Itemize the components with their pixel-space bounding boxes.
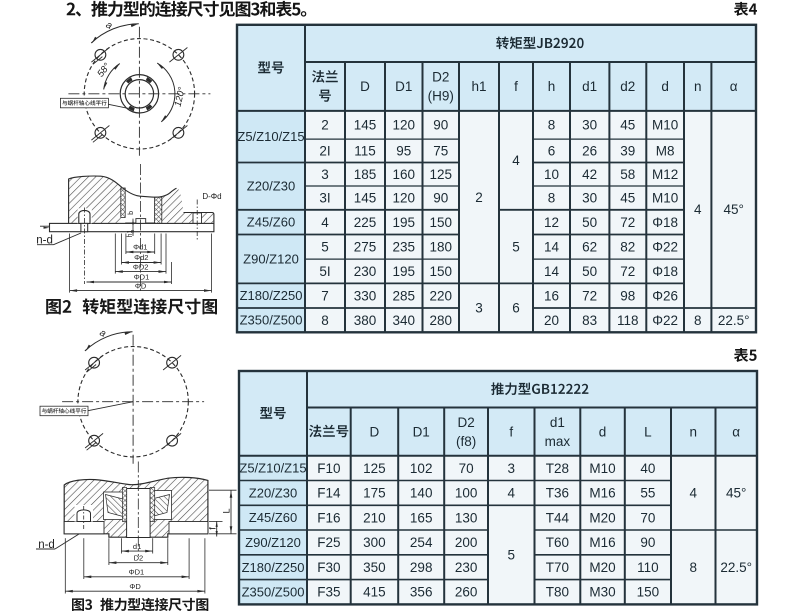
svg-text:2: 2 — [475, 190, 483, 205]
svg-text:Z5/Z10/Z15: Z5/Z10/Z15 — [237, 129, 304, 144]
svg-text:d: d — [599, 424, 607, 439]
svg-text:40: 40 — [640, 461, 655, 476]
svg-text:20: 20 — [544, 313, 559, 328]
svg-text:f: f — [208, 527, 218, 530]
svg-text:26: 26 — [582, 144, 597, 159]
svg-text:6: 6 — [512, 301, 520, 316]
svg-text:h: h — [548, 79, 556, 94]
svg-text:α: α — [730, 79, 738, 94]
svg-text:8: 8 — [321, 313, 329, 328]
svg-text:M8: M8 — [656, 144, 675, 159]
svg-text:175: 175 — [363, 486, 386, 501]
svg-text:6: 6 — [548, 144, 556, 159]
svg-text:150: 150 — [637, 585, 660, 600]
svg-text:max: max — [545, 434, 571, 449]
svg-text:a: a — [98, 327, 108, 340]
svg-text:260: 260 — [455, 585, 478, 600]
svg-text:340: 340 — [393, 313, 416, 328]
svg-text:415: 415 — [363, 585, 386, 600]
svg-text:300: 300 — [363, 535, 386, 550]
svg-text:8: 8 — [689, 560, 697, 575]
svg-text:90: 90 — [433, 118, 448, 133]
svg-text:125: 125 — [430, 167, 453, 182]
svg-text:ΦD: ΦD — [135, 281, 147, 290]
svg-text:F16: F16 — [317, 510, 340, 525]
svg-text:230: 230 — [455, 560, 478, 575]
svg-text:356: 356 — [410, 585, 433, 600]
svg-text:4: 4 — [507, 486, 515, 501]
svg-text:M16: M16 — [589, 486, 615, 501]
svg-text:M20: M20 — [589, 510, 615, 525]
svg-text:d1: d1 — [582, 79, 597, 94]
svg-text:L: L — [222, 508, 232, 513]
svg-text:Z20/Z30: Z20/Z30 — [249, 485, 297, 500]
svg-text:D1: D1 — [395, 79, 412, 94]
svg-text:70: 70 — [640, 510, 655, 525]
svg-text:235: 235 — [393, 240, 416, 255]
svg-text:72: 72 — [620, 264, 635, 279]
svg-text:10: 10 — [544, 167, 559, 182]
svg-text:14: 14 — [544, 240, 560, 255]
svg-text:125: 125 — [363, 461, 386, 476]
svg-text:Φd2: Φd2 — [134, 253, 148, 262]
svg-text:8: 8 — [548, 191, 556, 206]
svg-text:4: 4 — [512, 153, 520, 168]
svg-text:350: 350 — [363, 560, 386, 575]
svg-text:n: n — [694, 79, 702, 94]
svg-text:83: 83 — [582, 313, 597, 328]
svg-text:285: 285 — [393, 288, 416, 303]
svg-text:254: 254 — [410, 535, 433, 550]
svg-text:180: 180 — [430, 240, 453, 255]
svg-text:Φ26: Φ26 — [652, 288, 678, 303]
svg-text:F35: F35 — [317, 585, 340, 600]
svg-text:39: 39 — [620, 144, 635, 159]
svg-text:f: f — [514, 79, 518, 94]
svg-text:d: d — [661, 79, 669, 94]
svg-text:380: 380 — [354, 313, 377, 328]
svg-text:14: 14 — [544, 264, 560, 279]
svg-text:75: 75 — [433, 144, 448, 159]
svg-text:d2: d2 — [620, 79, 635, 94]
svg-text:(H9): (H9) — [428, 89, 454, 104]
svg-text:F14: F14 — [317, 486, 341, 501]
svg-text:4: 4 — [321, 215, 329, 230]
svg-text:16: 16 — [544, 288, 559, 303]
svg-text:7: 7 — [321, 288, 329, 303]
svg-text:130: 130 — [455, 510, 478, 525]
svg-text:D1: D1 — [413, 424, 430, 439]
svg-text:Z350/Z500: Z350/Z500 — [240, 313, 303, 328]
svg-text:165: 165 — [410, 510, 433, 525]
svg-text:45: 45 — [620, 191, 635, 206]
svg-text:D2: D2 — [134, 553, 144, 562]
svg-text:3: 3 — [475, 301, 483, 316]
svg-text:4: 4 — [694, 202, 702, 217]
svg-text:Φ22: Φ22 — [652, 240, 678, 255]
svg-text:95: 95 — [396, 144, 411, 159]
svg-text:Z20/Z30: Z20/Z30 — [247, 179, 295, 194]
svg-text:90: 90 — [433, 191, 448, 206]
svg-text:Z90/Z120: Z90/Z120 — [243, 252, 299, 267]
svg-text:145: 145 — [354, 118, 377, 133]
svg-text:70: 70 — [459, 461, 474, 476]
svg-text:T60: T60 — [546, 535, 569, 550]
svg-text:120: 120 — [393, 191, 416, 206]
svg-text:D: D — [360, 79, 370, 94]
svg-text:D-Φd: D-Φd — [202, 192, 221, 201]
svg-text:Φ22: Φ22 — [652, 313, 678, 328]
svg-text:225: 225 — [354, 215, 377, 230]
svg-text:298: 298 — [410, 560, 433, 575]
svg-text:30: 30 — [582, 191, 597, 206]
svg-text:58: 58 — [620, 167, 635, 182]
svg-text:M20: M20 — [589, 560, 615, 575]
svg-text:90: 90 — [640, 535, 655, 550]
svg-text:T44: T44 — [546, 510, 570, 525]
svg-text:D2: D2 — [457, 415, 474, 430]
svg-text:Z90/Z120: Z90/Z120 — [245, 535, 301, 550]
svg-text:2: 2 — [321, 118, 329, 133]
svg-text:F30: F30 — [317, 560, 340, 575]
svg-text:72: 72 — [620, 215, 635, 230]
svg-text:58°: 58° — [95, 61, 113, 79]
svg-text:82: 82 — [620, 240, 635, 255]
svg-text:Z350/Z500: Z350/Z500 — [242, 585, 305, 600]
svg-text:160: 160 — [393, 167, 416, 182]
svg-text:145: 145 — [354, 191, 377, 206]
svg-text:330: 330 — [354, 288, 377, 303]
svg-text:102: 102 — [410, 461, 433, 476]
svg-text:5: 5 — [512, 239, 520, 254]
svg-text:d1: d1 — [550, 415, 565, 430]
svg-text:120: 120 — [393, 118, 416, 133]
svg-text:F25: F25 — [317, 535, 340, 550]
svg-text:T70: T70 — [546, 560, 569, 575]
svg-text:110: 110 — [637, 560, 659, 575]
svg-text:h1: h1 — [471, 79, 486, 94]
svg-text:22.5°: 22.5° — [718, 313, 750, 328]
svg-text:Φd1: Φd1 — [133, 243, 147, 252]
svg-text:(f8): (f8) — [456, 434, 476, 449]
svg-text:280: 280 — [430, 313, 453, 328]
svg-text:Z45/Z60: Z45/Z60 — [249, 510, 297, 525]
svg-text:Z180/Z250: Z180/Z250 — [240, 288, 303, 303]
svg-text:T80: T80 — [546, 585, 569, 600]
svg-text:M12: M12 — [652, 167, 678, 182]
svg-text:195: 195 — [393, 215, 416, 230]
svg-text:22.5°: 22.5° — [720, 560, 752, 575]
svg-text:12: 12 — [544, 215, 559, 230]
svg-text:M10: M10 — [652, 191, 678, 206]
svg-text:ΦD: ΦD — [129, 582, 141, 591]
svg-text:45: 45 — [620, 118, 635, 133]
svg-text:150: 150 — [430, 264, 453, 279]
svg-text:b: b — [128, 211, 135, 215]
svg-text:2I: 2I — [319, 144, 330, 159]
svg-text:3: 3 — [507, 461, 515, 476]
svg-text:4: 4 — [689, 486, 697, 501]
svg-text:42: 42 — [582, 167, 597, 182]
svg-text:ΦD1: ΦD1 — [129, 568, 145, 577]
svg-text:d1: d1 — [133, 542, 141, 551]
svg-text:Φ18: Φ18 — [652, 264, 678, 279]
svg-text:62: 62 — [582, 240, 597, 255]
svg-text:30: 30 — [582, 118, 597, 133]
svg-text:α: α — [732, 424, 740, 439]
svg-text:220: 220 — [430, 288, 453, 303]
svg-text:3: 3 — [321, 167, 329, 182]
svg-text:T28: T28 — [546, 461, 569, 476]
svg-text:D2: D2 — [432, 70, 449, 85]
svg-text:45°: 45° — [726, 486, 746, 501]
svg-text:h1: h1 — [127, 230, 134, 238]
svg-text:118: 118 — [617, 313, 639, 328]
svg-text:195: 195 — [393, 264, 416, 279]
svg-text:200: 200 — [455, 535, 478, 550]
svg-text:L: L — [644, 424, 652, 439]
svg-text:50: 50 — [582, 264, 597, 279]
svg-text:ΦD2: ΦD2 — [133, 262, 149, 271]
svg-text:50: 50 — [582, 215, 597, 230]
svg-text:5: 5 — [321, 240, 329, 255]
svg-text:5: 5 — [507, 548, 515, 563]
svg-text:Z180/Z250: Z180/Z250 — [242, 560, 305, 575]
svg-text:230: 230 — [354, 264, 377, 279]
svg-text:Z45/Z60: Z45/Z60 — [247, 215, 295, 230]
svg-text:185: 185 — [354, 167, 377, 182]
svg-text:8: 8 — [694, 313, 702, 328]
svg-text:3I: 3I — [319, 191, 330, 206]
svg-text:98: 98 — [620, 288, 635, 303]
svg-text:a: a — [104, 20, 114, 33]
svg-text:210: 210 — [363, 510, 386, 525]
svg-text:115: 115 — [354, 144, 376, 159]
svg-text:150: 150 — [430, 215, 453, 230]
svg-text:Z5/Z10/Z15: Z5/Z10/Z15 — [239, 461, 306, 476]
svg-text:5I: 5I — [319, 264, 330, 279]
svg-text:140: 140 — [410, 486, 433, 501]
svg-text:55: 55 — [640, 486, 655, 501]
svg-text:45°: 45° — [723, 202, 743, 217]
svg-text:72: 72 — [582, 288, 597, 303]
svg-text:275: 275 — [354, 240, 377, 255]
svg-text:Φ18: Φ18 — [652, 215, 678, 230]
svg-text:M10: M10 — [652, 118, 678, 133]
svg-text:T36: T36 — [546, 486, 569, 501]
svg-text:n: n — [689, 424, 697, 439]
svg-text:M30: M30 — [589, 585, 615, 600]
svg-text:8: 8 — [548, 118, 556, 133]
svg-text:M16: M16 — [589, 535, 615, 550]
svg-text:D: D — [370, 424, 380, 439]
svg-text:100: 100 — [455, 486, 478, 501]
svg-text:f: f — [509, 424, 513, 439]
svg-text:M10: M10 — [589, 461, 615, 476]
svg-text:F10: F10 — [317, 461, 340, 476]
